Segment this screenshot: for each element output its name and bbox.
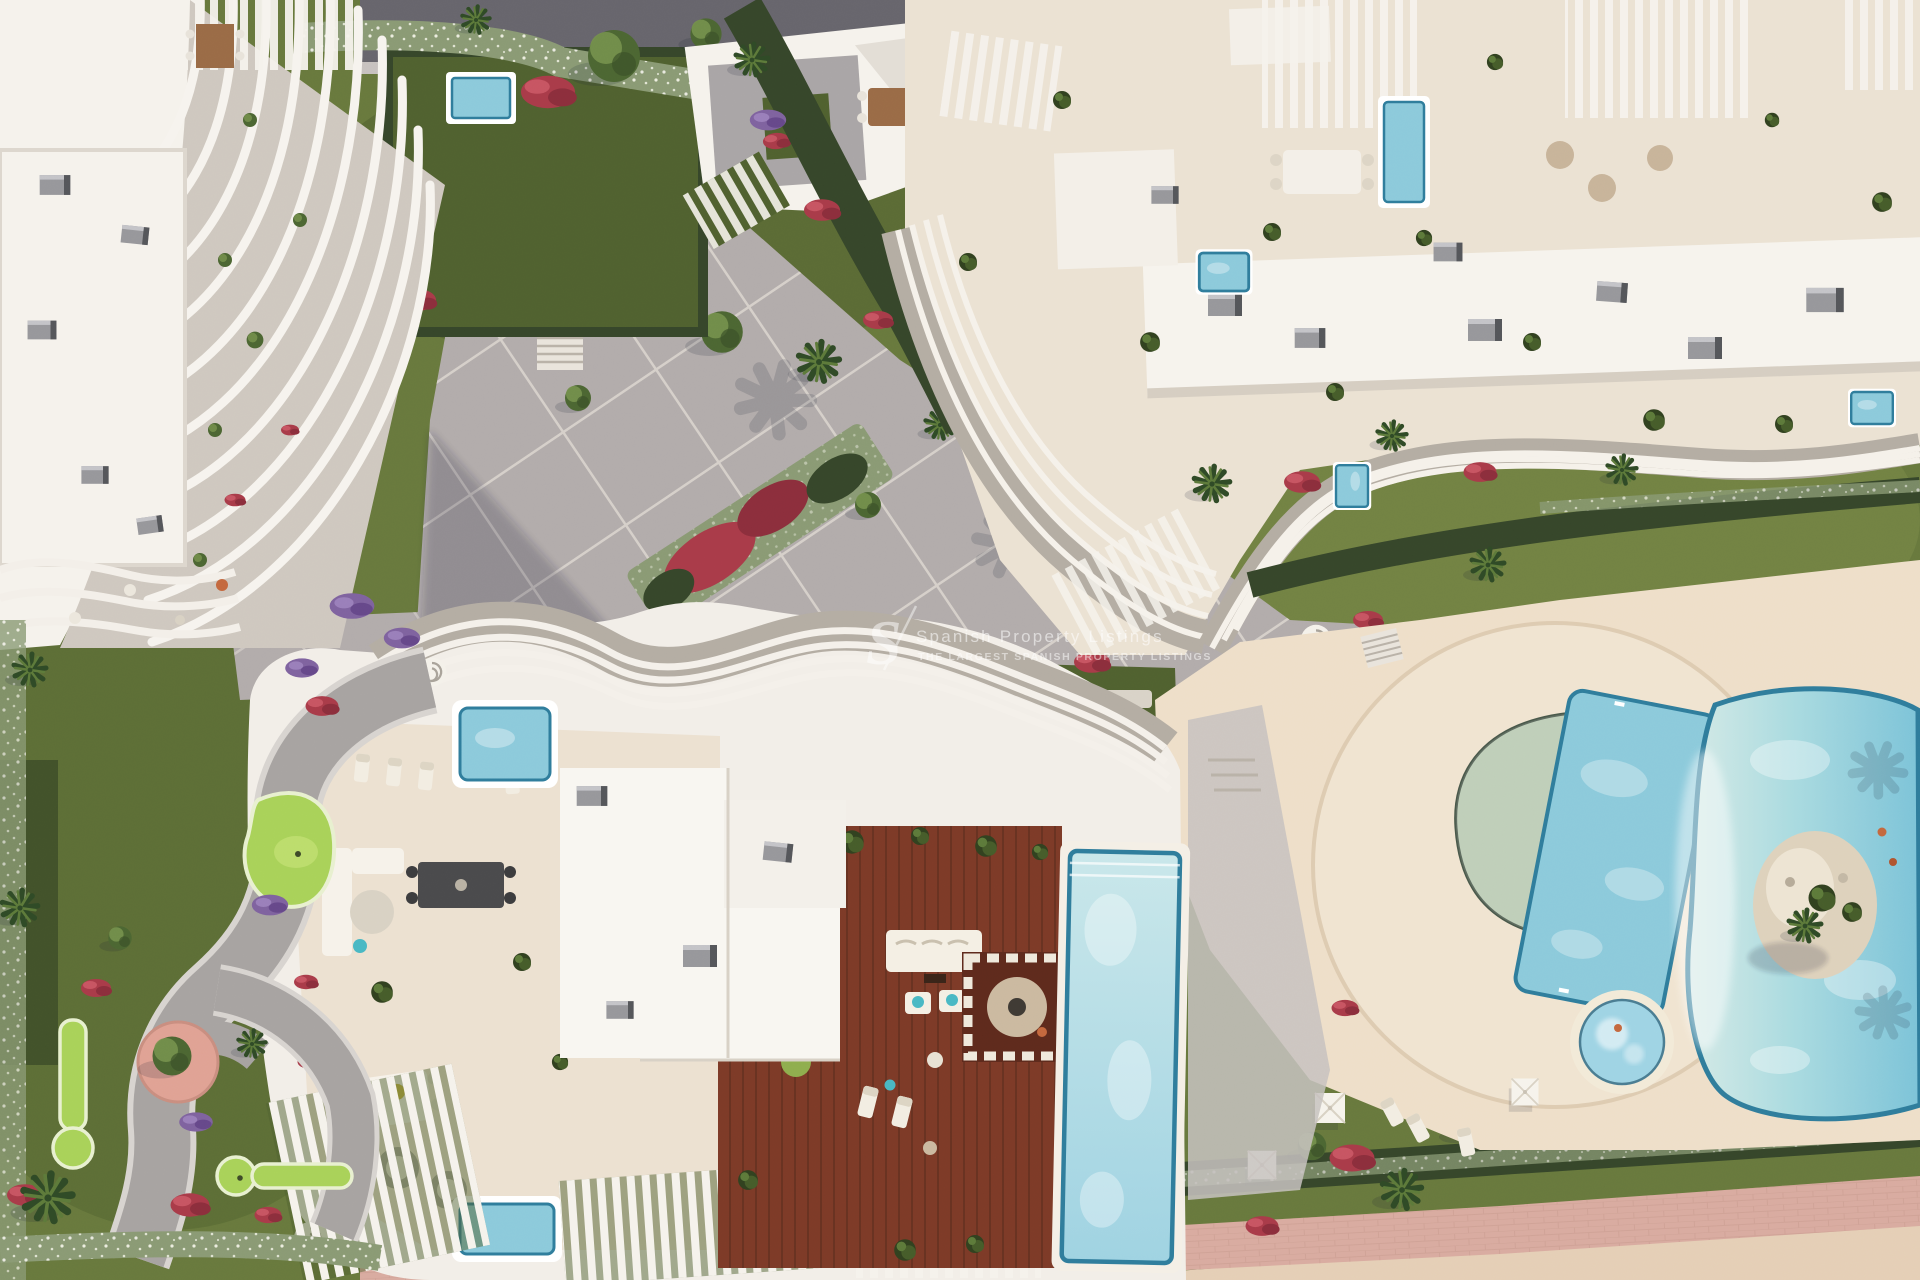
watermark-logo-letter: S [866,607,902,678]
watermark-title: Spanish Property Listings [916,627,1164,646]
watermark-subtitle: THE LARGEST SPANISH PROPERTY LISTINGS [918,651,1212,663]
render-canvas: S Spanish Property Listings THE LARGEST … [0,0,1920,1280]
property-aerial-render: S Spanish Property Listings THE LARGEST … [0,0,1920,1280]
